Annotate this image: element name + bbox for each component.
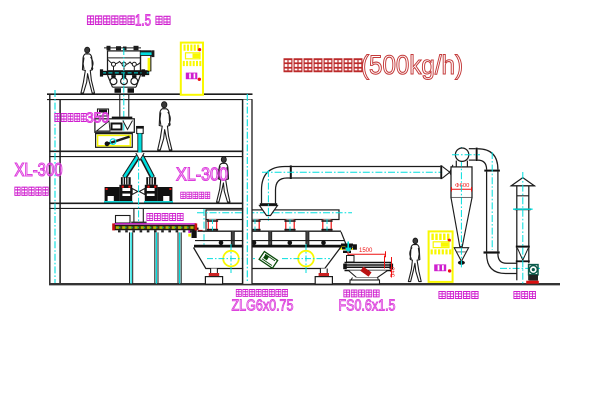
svg-text:350: 350 (86, 111, 109, 127)
svg-text:(500kg/h): (500kg/h) (361, 50, 463, 80)
svg-text:XL-300: XL-300 (15, 160, 63, 180)
svg-text:1.5: 1.5 (135, 13, 151, 30)
svg-text:ZLG6x0.75: ZLG6x0.75 (232, 298, 294, 315)
svg-text:1500: 1500 (359, 248, 373, 254)
svg-text:FS0.6x1.5: FS0.6x1.5 (339, 298, 396, 315)
svg-text:Φ600: Φ600 (455, 183, 469, 189)
svg-text:540: 540 (391, 266, 397, 277)
svg-text:XL-300: XL-300 (176, 164, 228, 185)
